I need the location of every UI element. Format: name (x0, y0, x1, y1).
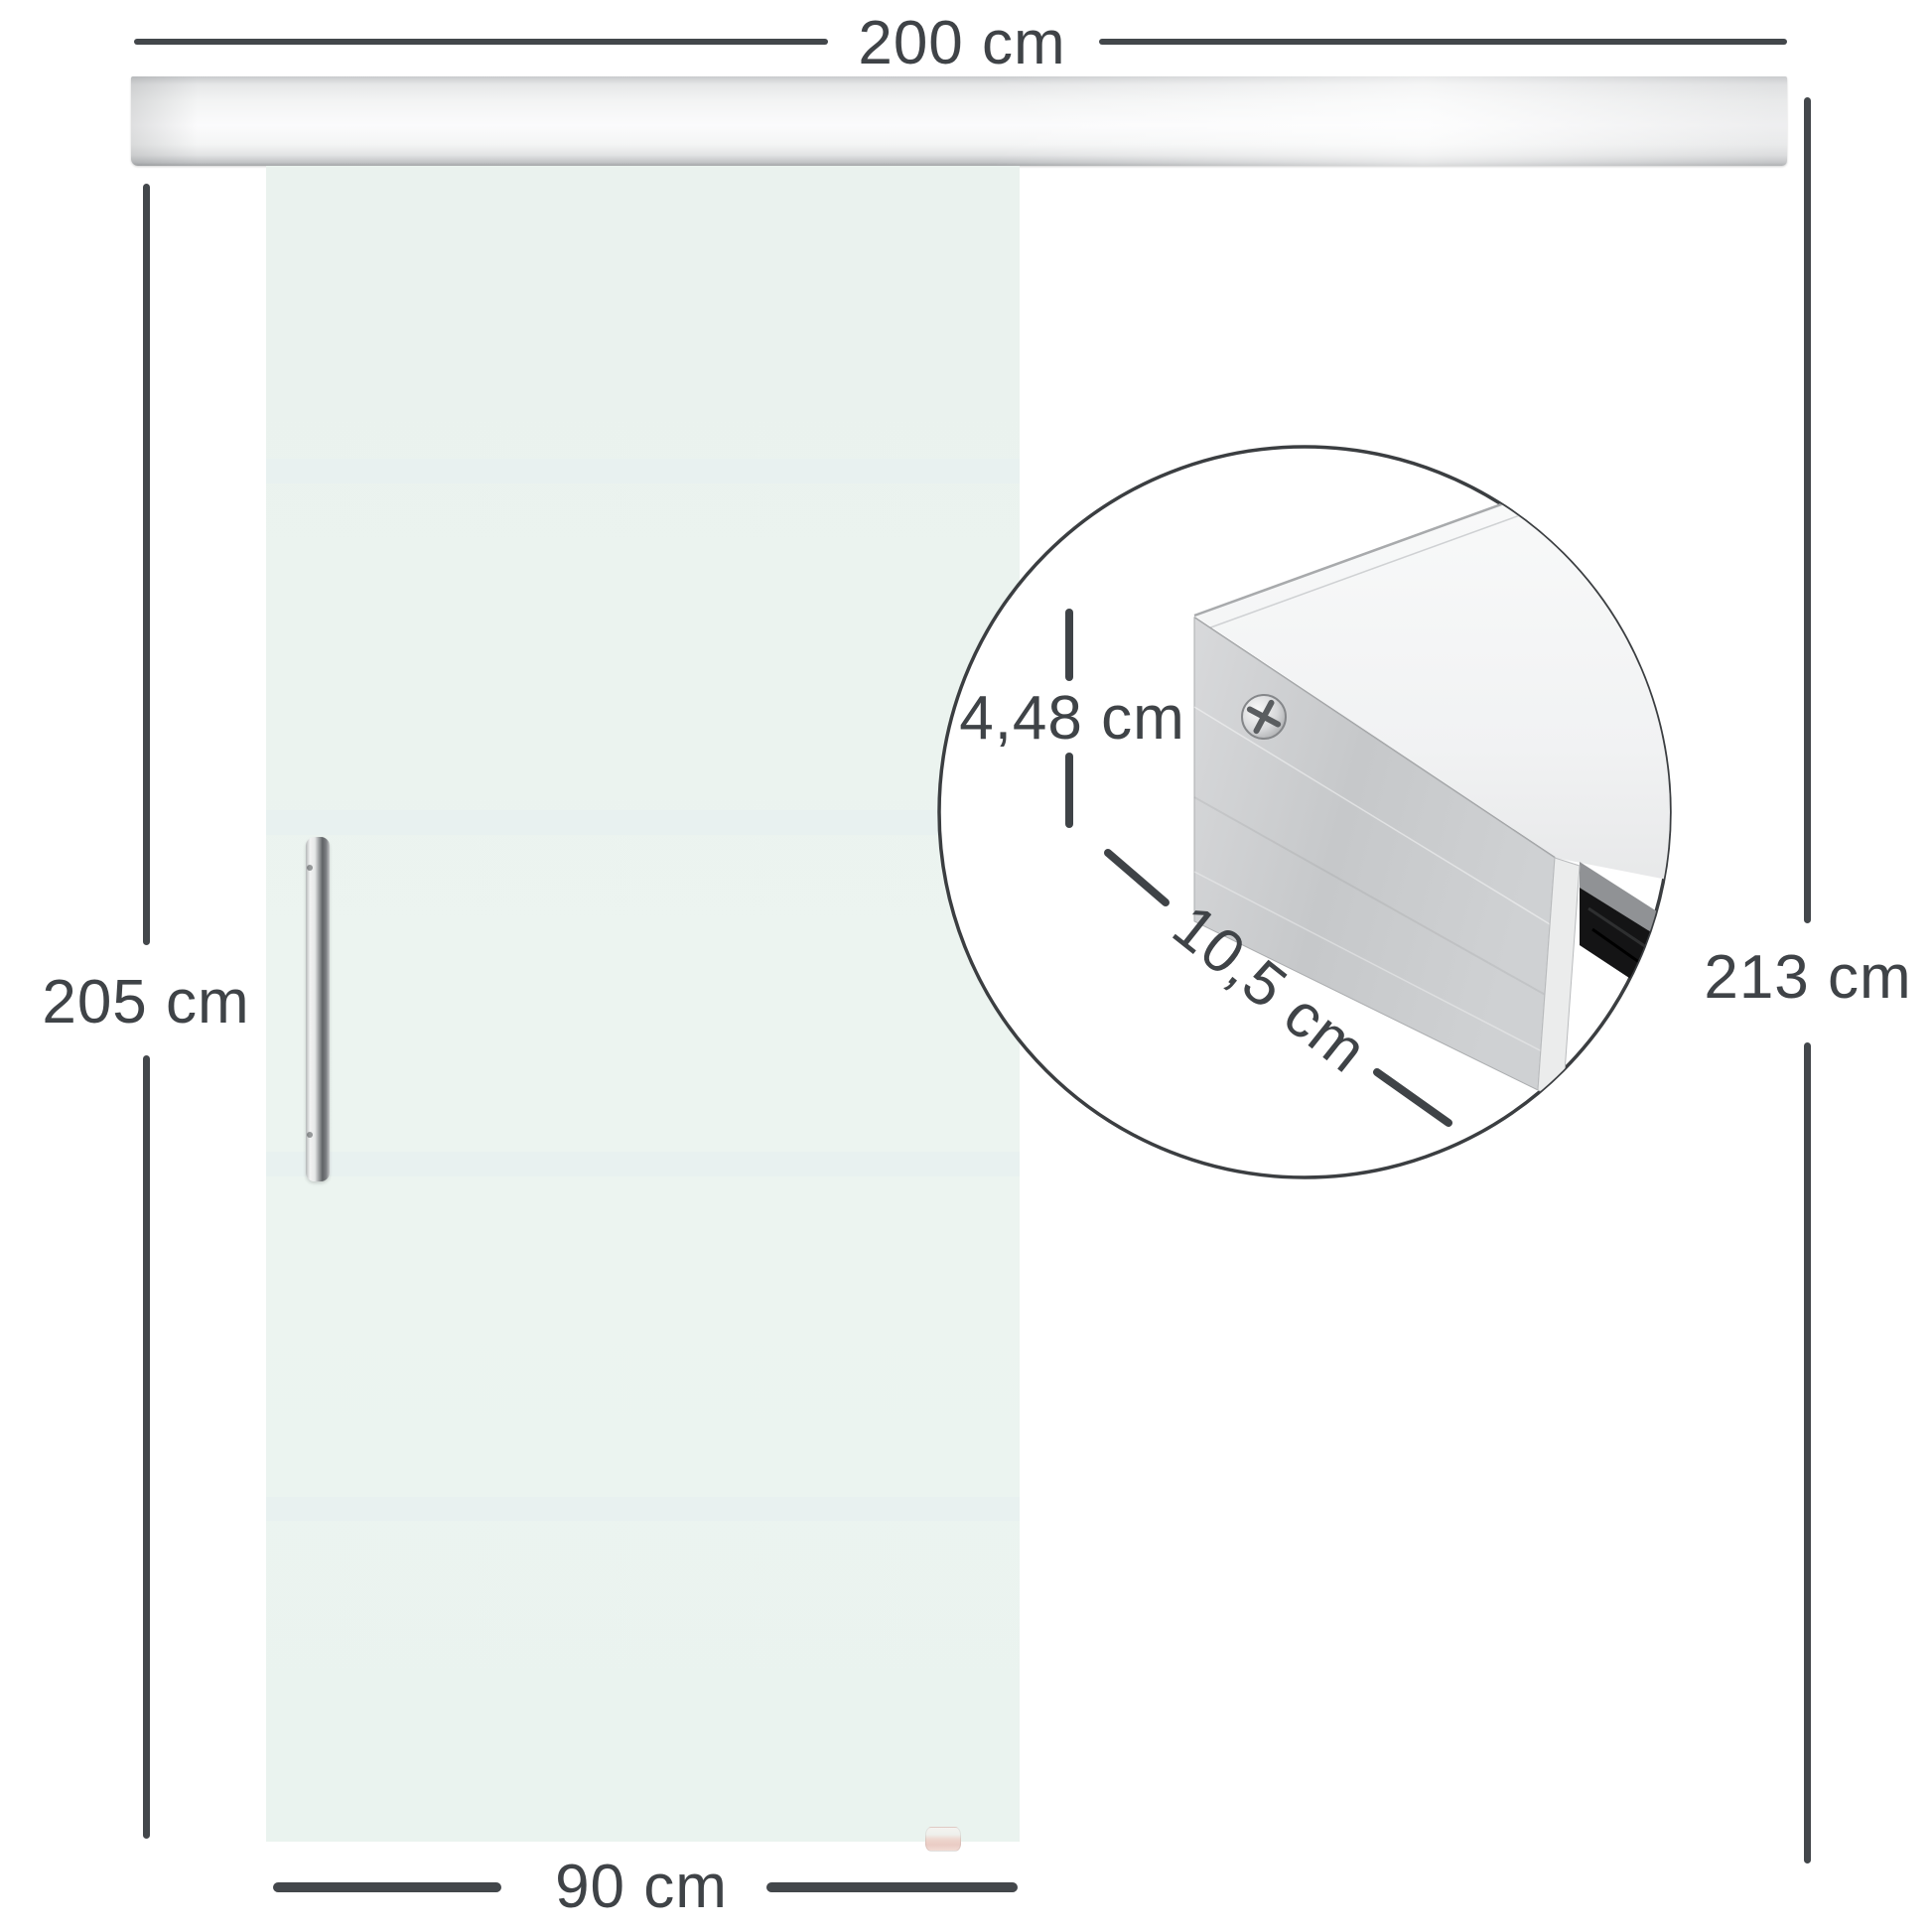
door-width-dim-line-right (766, 1882, 1018, 1892)
glass-stripe (266, 1152, 1020, 1176)
door-width-dim-line-left (273, 1882, 501, 1892)
top-width-label: 200 cm (858, 13, 1065, 74)
glass-stripe (266, 810, 1020, 835)
profile-depth-label: 10,5 cm (1161, 892, 1380, 1086)
slot-streak (1588, 908, 1682, 971)
top-width-dim-line-left (134, 39, 828, 45)
brushed-line (1194, 797, 1549, 997)
total-height-label: 213 cm (1704, 947, 1911, 1009)
wall-rail (131, 76, 1787, 166)
glass-stripe (266, 1497, 1020, 1521)
door-handle (306, 837, 330, 1181)
rail-plate-bevel (1538, 858, 1580, 1100)
glass-door (266, 166, 1020, 1842)
door-height-label: 205 cm (42, 972, 249, 1034)
product-diagram: 200 cm 205 cm 213 cm 90 cm (0, 0, 1932, 1932)
rail-underside (1580, 862, 1688, 955)
profile-depth-dim-dash-lower (1377, 1072, 1449, 1123)
door-height-dim-line-bottom (143, 1055, 150, 1839)
rail-front-plate (1194, 618, 1555, 1090)
rail-top-bevel-line (1205, 459, 1676, 629)
door-height-dim-line-top (143, 184, 150, 945)
inset-circle (939, 447, 1670, 1177)
slot-streak (1592, 929, 1680, 991)
total-height-dim-line-top (1804, 97, 1811, 923)
screw-head (1242, 695, 1286, 739)
rail-top-edge-line (1194, 437, 1688, 616)
brushed-line (1194, 872, 1544, 1052)
brushed-line (1194, 707, 1555, 927)
door-width-label: 90 cm (555, 1857, 728, 1918)
rail-top-face (1194, 437, 1688, 884)
rail-glass-slot (1580, 888, 1688, 1017)
rail-crease-line (1194, 618, 1555, 858)
profile-depth-dim-dash-upper (1108, 853, 1166, 902)
glass-stripe (266, 459, 1020, 483)
top-width-dim-line-right (1099, 39, 1787, 45)
total-height-dim-line-bottom (1804, 1042, 1811, 1863)
floor-guide (925, 1827, 961, 1852)
